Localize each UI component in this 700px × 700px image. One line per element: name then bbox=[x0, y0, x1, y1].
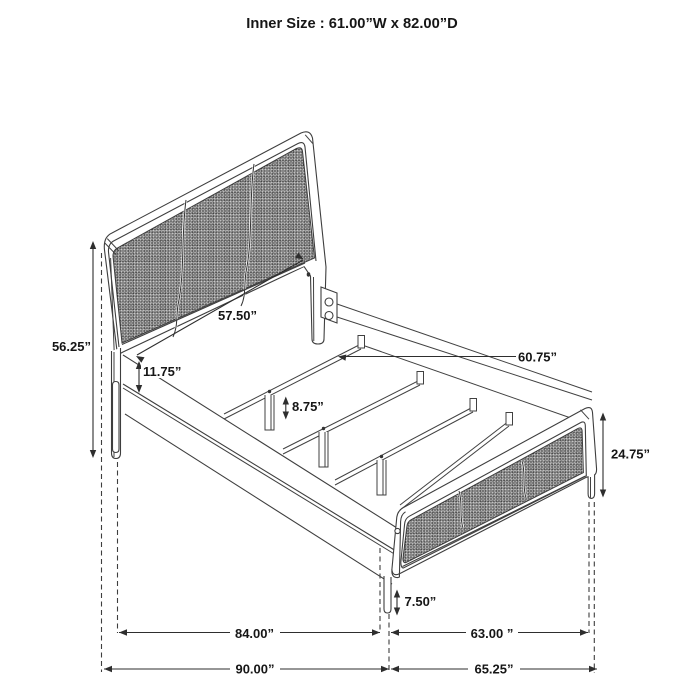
svg-text:8.75”: 8.75” bbox=[292, 399, 324, 414]
svg-text:90.00”: 90.00” bbox=[235, 662, 274, 677]
svg-text:84.00”: 84.00” bbox=[235, 626, 274, 641]
svg-text:65.25”: 65.25” bbox=[474, 662, 513, 677]
svg-text:11.75”: 11.75” bbox=[143, 364, 181, 379]
svg-text:Inner Size : 61.00”W x 82.00”D: Inner Size : 61.00”W x 82.00”D bbox=[246, 16, 457, 32]
svg-text:60.75”: 60.75” bbox=[518, 350, 557, 365]
svg-text:63.00 ”: 63.00 ” bbox=[471, 626, 514, 641]
svg-text:57.50”: 57.50” bbox=[218, 308, 257, 323]
svg-text:56.25”: 56.25” bbox=[52, 339, 91, 354]
svg-text:7.50”: 7.50” bbox=[405, 594, 437, 609]
svg-text:24.75”: 24.75” bbox=[611, 447, 650, 462]
